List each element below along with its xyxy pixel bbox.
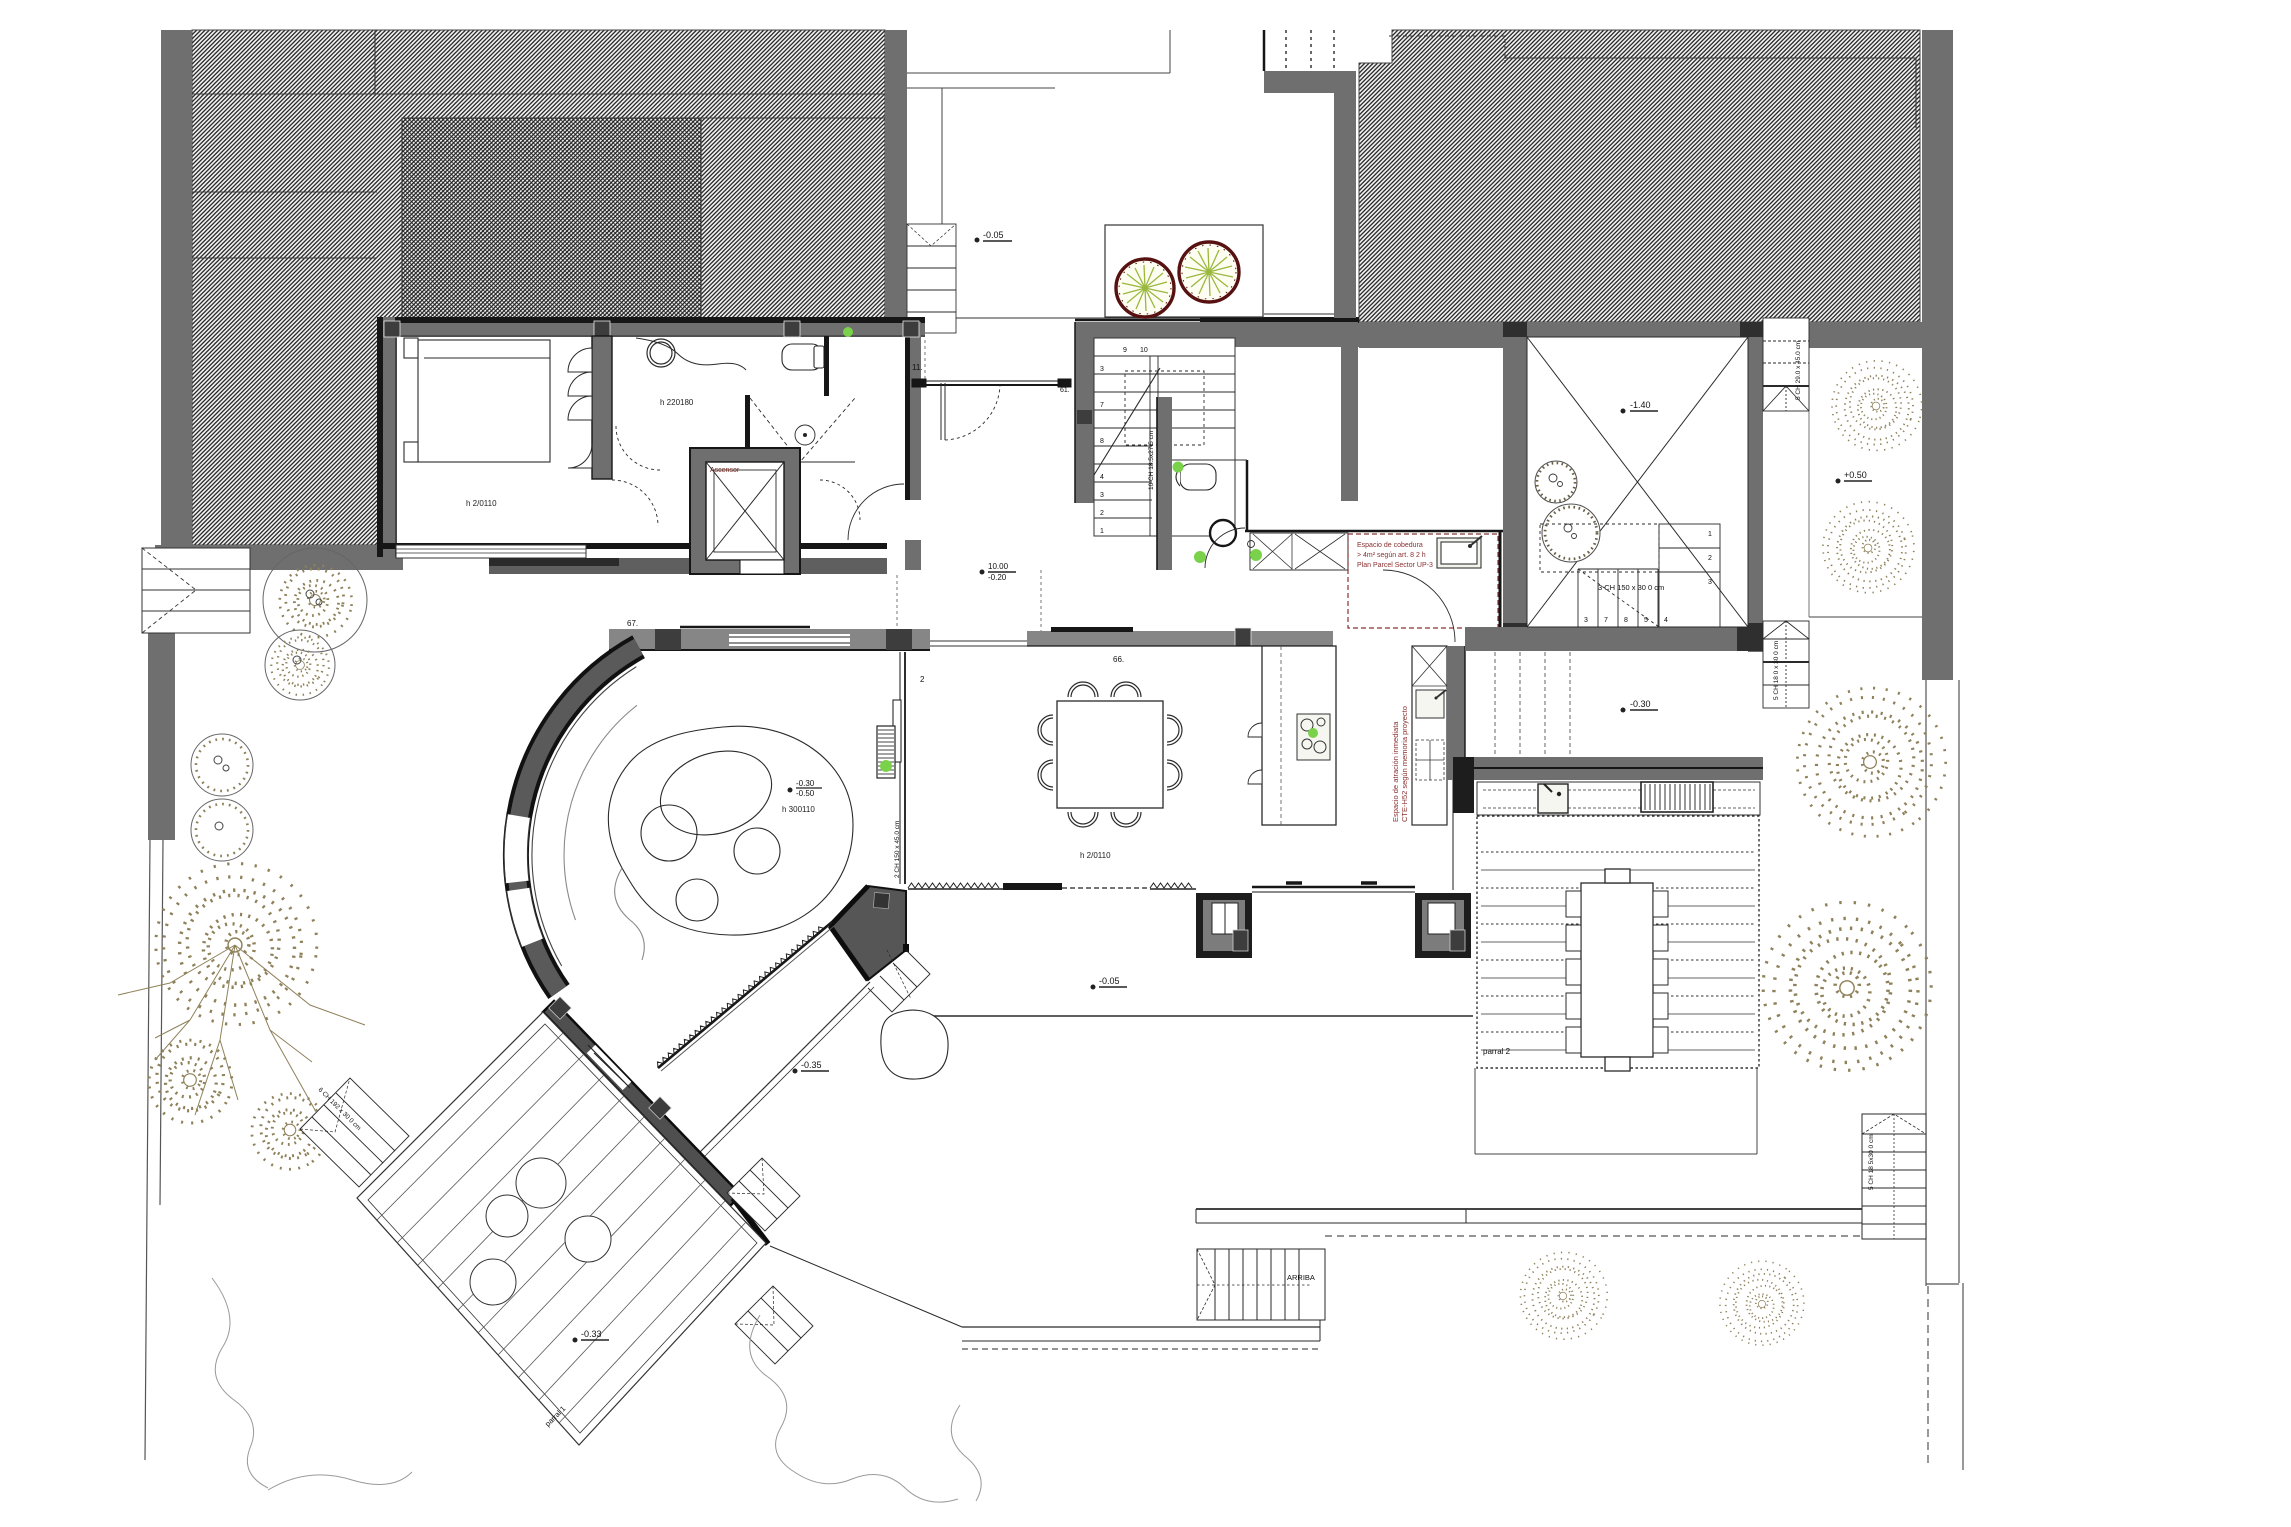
svg-text:7: 7: [1100, 402, 1104, 409]
svg-text:8: 8: [1624, 617, 1628, 624]
svg-text:parral 2: parral 2: [1483, 1047, 1511, 1056]
svg-text:67.: 67.: [627, 619, 638, 628]
svg-text:-0.30: -0.30: [796, 779, 815, 788]
svg-text:7: 7: [1604, 617, 1608, 624]
svg-text:1: 1: [1708, 531, 1712, 538]
svg-text:4: 4: [1664, 617, 1668, 624]
svg-text:2: 2: [1708, 555, 1712, 562]
svg-text:> 4m² según art. 8 2 h: > 4m² según art. 8 2 h: [1357, 552, 1426, 559]
svg-text:h 220180: h 220180: [660, 398, 694, 407]
svg-text:10.00: 10.00: [988, 562, 1009, 571]
svg-text:3: 3: [1708, 579, 1712, 586]
svg-text:10: 10: [1140, 347, 1148, 354]
svg-text:2 CH 150 x 45.0 cm: 2 CH 150 x 45.0 cm: [894, 821, 901, 878]
svg-text:2: 2: [920, 675, 925, 684]
svg-text:3: 3: [1584, 617, 1588, 624]
svg-text:Plan Parcel Sector UP-3: Plan Parcel Sector UP-3: [1357, 562, 1433, 569]
svg-text:10 CH 18.5x27.5 cm: 10 CH 18.5x27.5 cm: [1148, 431, 1155, 490]
svg-text:CTE-H52 según memoria proyecto: CTE-H52 según memoria proyecto: [1400, 706, 1409, 822]
svg-text:8: 8: [1100, 438, 1104, 445]
svg-text:-0.50: -0.50: [796, 789, 815, 798]
svg-text:Ascensor: Ascensor: [710, 467, 740, 474]
svg-text:+0.50: +0.50: [1844, 470, 1867, 480]
svg-text:2: 2: [1100, 510, 1104, 517]
svg-text:-0.35: -0.35: [801, 1060, 822, 1070]
svg-text:Espacio de atración inmediata: Espacio de atración inmediata: [1391, 721, 1400, 822]
svg-text:66.: 66.: [1113, 655, 1124, 664]
svg-text:ARRIBA: ARRIBA: [1287, 1273, 1315, 1282]
svg-text:3: 3: [1100, 492, 1104, 499]
svg-text:11.: 11.: [912, 363, 923, 372]
svg-text:9: 9: [1123, 347, 1127, 354]
svg-text:h 300110: h 300110: [782, 805, 815, 814]
svg-text:-0.20: -0.20: [988, 573, 1007, 582]
svg-text:3 CH 150 x 30 0 cm: 3 CH 150 x 30 0 cm: [1598, 583, 1664, 592]
svg-text:h 2/0110: h 2/0110: [1080, 851, 1111, 860]
svg-text:h 2/0110: h 2/0110: [466, 499, 497, 508]
svg-text:-0.33: -0.33: [581, 1329, 602, 1339]
svg-text:1: 1: [1100, 528, 1104, 535]
svg-text:4: 4: [1100, 474, 1104, 481]
svg-text:61.: 61.: [1060, 387, 1070, 394]
svg-text:5 CH 18 5x30 0 cm: 5 CH 18 5x30 0 cm: [1868, 1134, 1875, 1190]
svg-text:5 CH 29.0 x 45.0 cm: 5 CH 29.0 x 45.0 cm: [1795, 341, 1802, 400]
svg-text:5 CH 18 0 x 30 0 cm: 5 CH 18 0 x 30 0 cm: [1773, 641, 1780, 700]
svg-text:3: 3: [1100, 366, 1104, 373]
svg-text:-0.30: -0.30: [1630, 699, 1651, 709]
svg-text:-0.05: -0.05: [983, 230, 1004, 240]
svg-text:Espacio de cobedura: Espacio de cobedura: [1357, 542, 1423, 549]
svg-text:-1.40: -1.40: [1630, 400, 1651, 410]
svg-text:5: 5: [1644, 617, 1648, 624]
svg-text:-0.05: -0.05: [1099, 976, 1120, 986]
